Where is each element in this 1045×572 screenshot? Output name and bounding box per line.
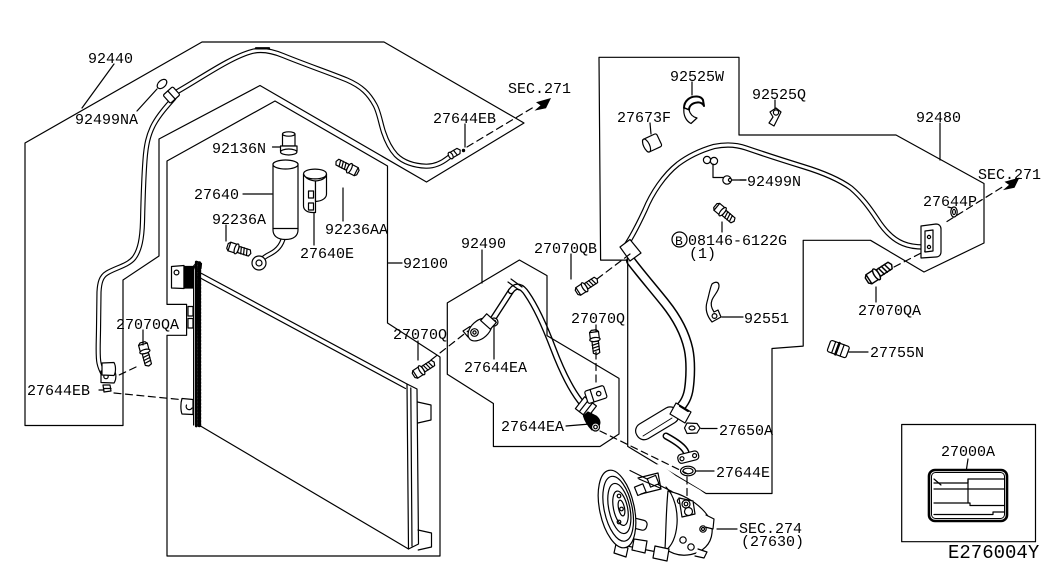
svg-text:27070QB: 27070QB — [534, 241, 597, 258]
svg-text:27070Q: 27070Q — [571, 311, 625, 328]
svg-text:92480: 92480 — [916, 110, 961, 127]
svg-text:92499NA: 92499NA — [75, 112, 138, 129]
svg-text:SEC.271: SEC.271 — [508, 81, 571, 98]
svg-text:92440: 92440 — [88, 51, 133, 68]
svg-text:27644EA: 27644EA — [464, 360, 527, 377]
svg-text:(27630): (27630) — [741, 534, 804, 551]
svg-text:SEC.271: SEC.271 — [978, 167, 1041, 184]
svg-text:27070QA: 27070QA — [116, 317, 179, 334]
svg-text:92236AA: 92236AA — [325, 222, 388, 239]
svg-text:27650A: 27650A — [719, 423, 773, 440]
svg-text:(1): (1) — [689, 246, 716, 263]
svg-text:27644EA: 27644EA — [501, 419, 564, 436]
svg-text:27644EB: 27644EB — [27, 383, 90, 400]
svg-text:E276004Y: E276004Y — [948, 542, 1040, 564]
svg-text:92236A: 92236A — [212, 212, 266, 229]
svg-text:92136N: 92136N — [212, 141, 266, 158]
svg-text:92525W: 92525W — [670, 69, 724, 86]
svg-text:92490: 92490 — [461, 236, 506, 253]
svg-text:92499N: 92499N — [747, 174, 801, 191]
svg-text:27673F: 27673F — [617, 110, 671, 127]
svg-text:27644EB: 27644EB — [433, 111, 496, 128]
svg-text:27755N: 27755N — [870, 345, 924, 362]
svg-text:92551: 92551 — [744, 311, 789, 328]
svg-text:27644P: 27644P — [923, 194, 977, 211]
svg-text:27640: 27640 — [194, 187, 239, 204]
svg-text:27000A: 27000A — [941, 444, 995, 461]
svg-text:92525Q: 92525Q — [752, 87, 806, 104]
svg-text:92100: 92100 — [403, 256, 448, 273]
svg-text:B: B — [675, 234, 683, 249]
svg-text:27644E: 27644E — [716, 465, 770, 482]
svg-text:27640E: 27640E — [300, 246, 354, 263]
svg-text:27070Q: 27070Q — [393, 327, 447, 344]
svg-text:27070QA: 27070QA — [858, 303, 921, 320]
